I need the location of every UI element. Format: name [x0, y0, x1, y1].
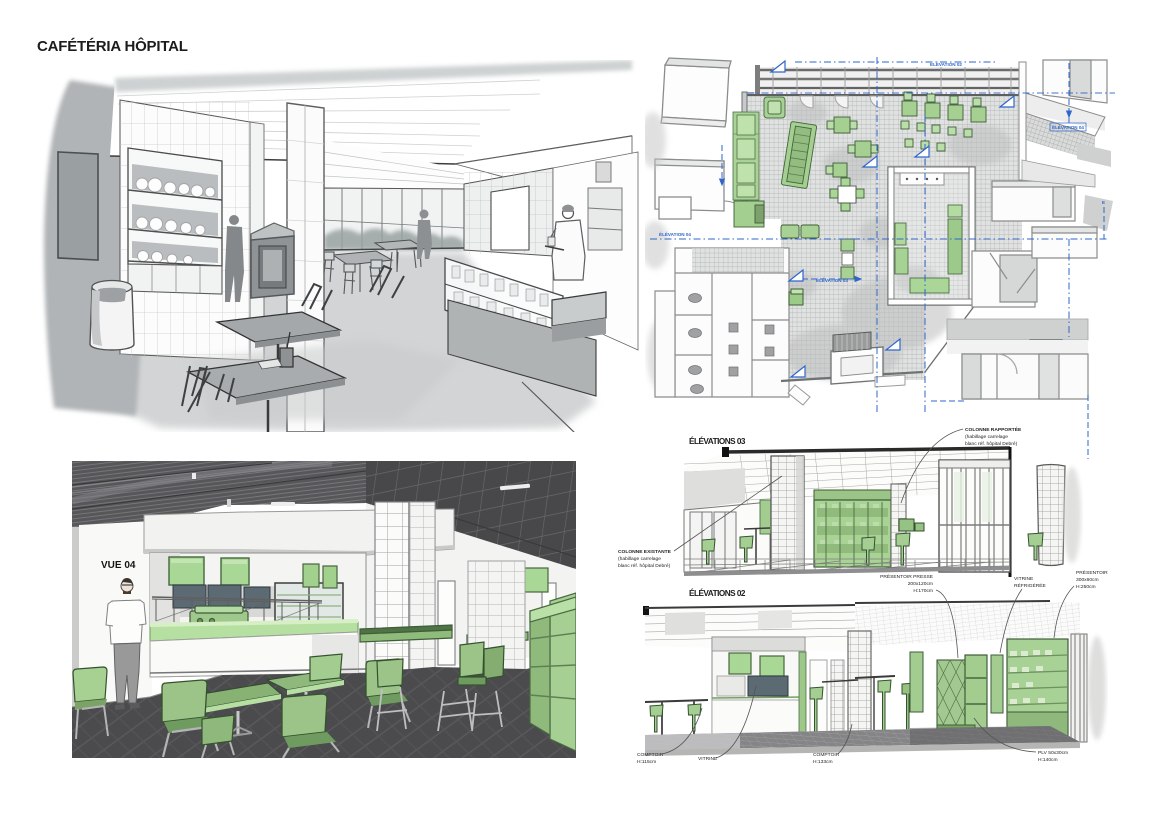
svg-text:300x60cm: 300x60cm — [1076, 577, 1099, 583]
svg-text:(habillage carrelage: (habillage carrelage — [618, 556, 661, 562]
svg-text:H:140cm: H:140cm — [1038, 757, 1058, 763]
svg-text:H:133cm: H:133cm — [813, 759, 833, 765]
svg-text:COMPTOIR: COMPTOIR — [813, 752, 840, 758]
svg-text:VUE 04: VUE 04 — [101, 560, 136, 571]
svg-text:COLONNE RAPPORTÉE: COLONNE RAPPORTÉE — [965, 425, 1022, 433]
svg-text:ÉLÉVATION 04: ÉLÉVATION 04 — [659, 230, 691, 237]
svg-text:COMPTOIR: COMPTOIR — [637, 752, 664, 758]
svg-text:VITRINE: VITRINE — [698, 756, 718, 762]
svg-text:PLV 50x30cm: PLV 50x30cm — [1038, 750, 1068, 756]
svg-text:200x120cm: 200x120cm — [908, 581, 933, 587]
svg-text:blanc réf. hôpital Debré): blanc réf. hôpital Debré) — [965, 441, 1018, 447]
svg-text:H:115cm: H:115cm — [637, 759, 656, 765]
svg-text:(habillage carrelage: (habillage carrelage — [965, 434, 1008, 440]
svg-text:ÉLÉVATION 04: ÉLÉVATION 04 — [1052, 123, 1084, 130]
svg-text:ÉLÉVATION 03: ÉLÉVATION 03 — [816, 276, 848, 283]
svg-text:H:250cm: H:250cm — [1076, 584, 1096, 590]
svg-text:E: E — [1102, 200, 1105, 205]
svg-text:ÉLÉVATIONS 02: ÉLÉVATIONS 02 — [689, 588, 746, 598]
svg-text:VITRINE: VITRINE — [1014, 576, 1034, 582]
svg-text:RÉFRIGÉRÉE: RÉFRIGÉRÉE — [1014, 582, 1047, 589]
svg-text:PRÉSENTOIR: PRÉSENTOIR — [1076, 569, 1108, 576]
svg-text:H:170cm: H:170cm — [913, 588, 933, 594]
svg-text:COLONNE EXISTANTE: COLONNE EXISTANTE — [618, 549, 672, 555]
svg-text:ÉLÉVATIONS 03: ÉLÉVATIONS 03 — [689, 436, 746, 446]
svg-text:ÉLÉVATION 02: ÉLÉVATION 02 — [930, 60, 962, 67]
svg-text:PRÉSENTOIR PRESSE: PRÉSENTOIR PRESSE — [880, 573, 934, 580]
svg-text:blanc réf. hôpital Debré): blanc réf. hôpital Debré) — [618, 563, 671, 569]
